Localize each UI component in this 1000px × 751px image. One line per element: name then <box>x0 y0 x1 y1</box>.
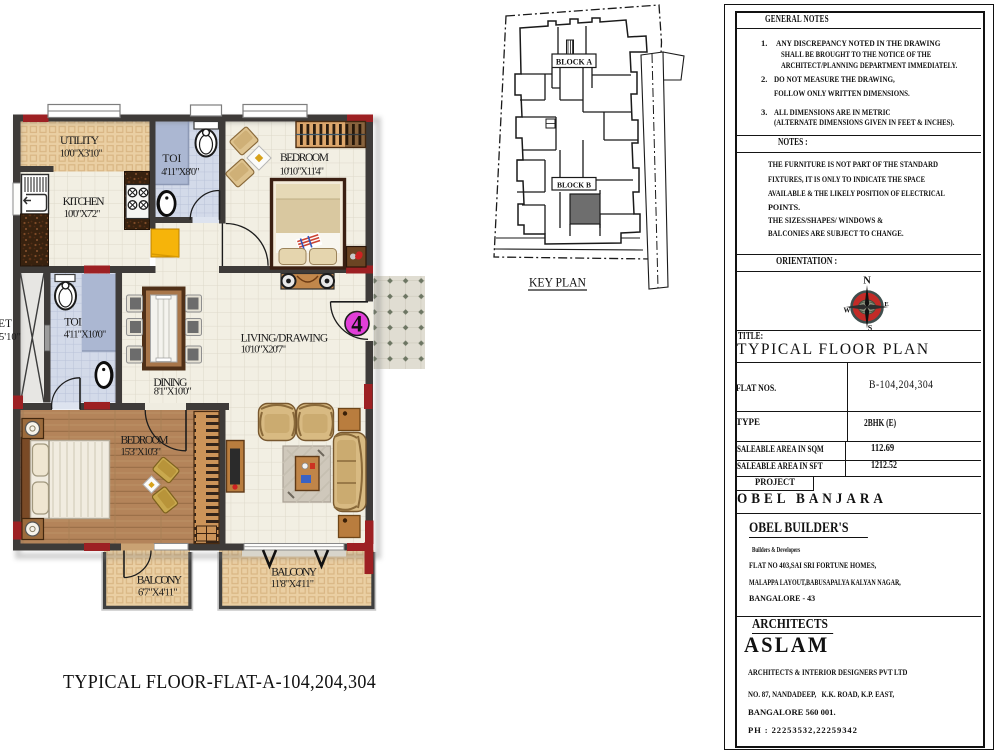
svg-text:KEY PLAN: KEY PLAN <box>529 275 587 290</box>
svg-text:10'10"X11'4": 10'10"X11'4" <box>280 167 324 178</box>
svg-text:4: 4 <box>351 312 363 337</box>
svg-text:TOI: TOI <box>162 153 181 165</box>
svg-text:4'11"X10'0": 4'11"X10'0" <box>64 330 107 341</box>
svg-text:BLOCK B: BLOCK B <box>557 181 591 190</box>
svg-text:4'11"X8'0": 4'11"X8'0" <box>161 167 199 178</box>
svg-text:UTILITY: UTILITY <box>60 135 100 147</box>
svg-text:15'3"X10'3": 15'3"X10'3" <box>121 447 162 458</box>
svg-text:BALCONY: BALCONY <box>271 567 318 579</box>
svg-text:BEDROOM: BEDROOM <box>280 152 329 164</box>
svg-text:BLOCK A: BLOCK A <box>556 58 592 67</box>
svg-text:TOI: TOI <box>64 317 82 329</box>
svg-text:10'10"X20'7": 10'10"X20'7" <box>241 345 287 356</box>
svg-text:10'0"X3'10": 10'0"X3'10" <box>60 149 103 160</box>
svg-text:6'7"X4'11": 6'7"X4'11" <box>138 588 178 599</box>
svg-text:10'0"X7'2": 10'0"X7'2" <box>64 209 101 220</box>
svg-text:BEDROOM: BEDROOM <box>121 435 169 447</box>
svg-text:5'10": 5'10" <box>0 332 21 343</box>
svg-text:LIVING/DRAWING: LIVING/DRAWING <box>241 333 329 345</box>
svg-text:KITCHEN: KITCHEN <box>63 196 106 208</box>
svg-text:BALCONY: BALCONY <box>137 575 183 587</box>
svg-text:8'1"X10'0": 8'1"X10'0" <box>154 387 192 398</box>
svg-text:ET: ET <box>0 318 12 330</box>
svg-text:11'8"X4'11": 11'8"X4'11" <box>271 579 314 590</box>
